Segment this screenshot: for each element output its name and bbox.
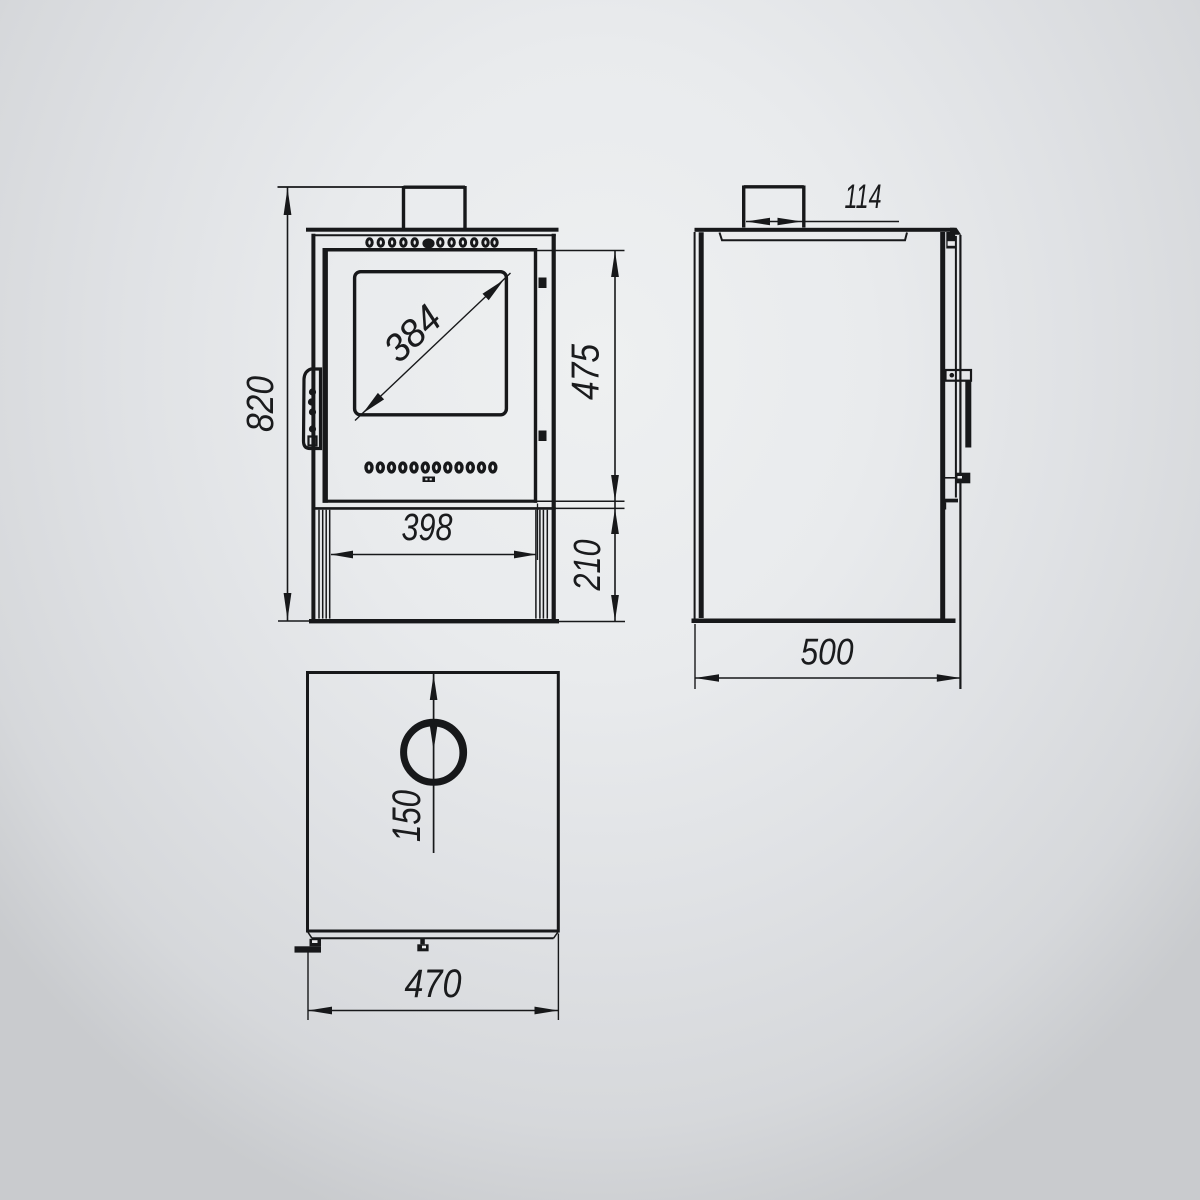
svg-text:820: 820 xyxy=(240,376,282,432)
svg-text:500: 500 xyxy=(801,632,854,673)
svg-text:398: 398 xyxy=(402,507,453,549)
svg-text:150: 150 xyxy=(385,790,429,842)
svg-text:384: 384 xyxy=(376,297,451,371)
svg-text:114: 114 xyxy=(845,178,882,216)
svg-text:470: 470 xyxy=(405,962,462,1006)
svg-text:475: 475 xyxy=(565,344,608,400)
svg-text:210: 210 xyxy=(567,540,609,592)
